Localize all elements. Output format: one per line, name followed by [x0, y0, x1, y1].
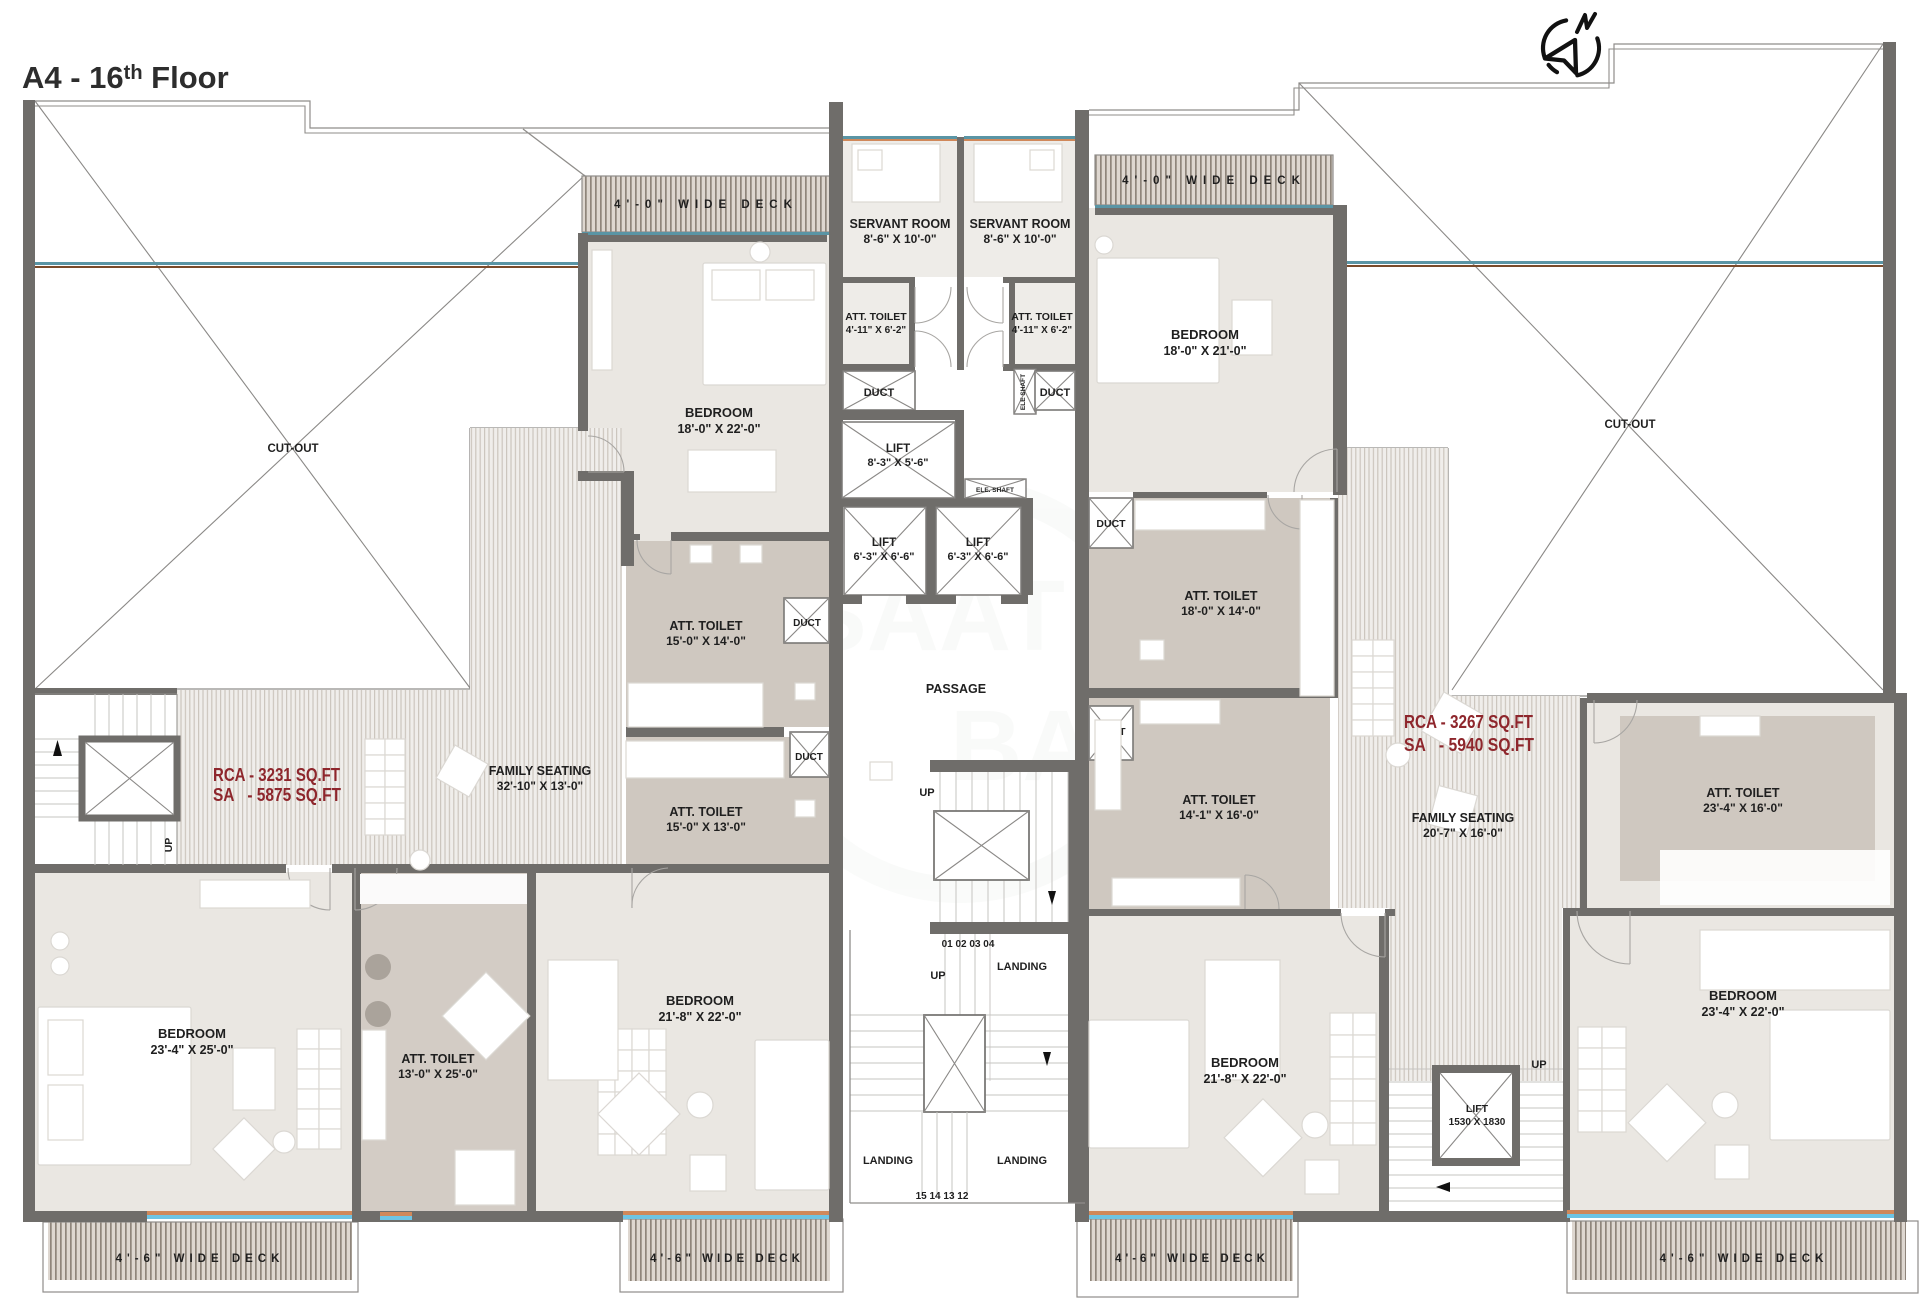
svg-text:LIFT: LIFT: [886, 443, 910, 455]
svg-text:FAMILY SEATING: FAMILY SEATING: [489, 764, 592, 778]
svg-text:FAMILY SEATING: FAMILY SEATING: [1412, 811, 1515, 825]
svg-text:18'-0" X 14'-0": 18'-0" X 14'-0": [1181, 604, 1261, 618]
svg-text:BEDROOM: BEDROOM: [158, 1026, 226, 1041]
svg-text:LANDING: LANDING: [997, 961, 1047, 973]
svg-text:ATT. TOILET: ATT. TOILET: [669, 805, 743, 819]
svg-text:ATT. TOILET: ATT. TOILET: [845, 311, 907, 323]
svg-text:18'-0" X 22'-0": 18'-0" X 22'-0": [677, 422, 760, 436]
svg-text:LANDING: LANDING: [997, 1155, 1047, 1167]
svg-text:ATT. TOILET: ATT. TOILET: [1182, 793, 1256, 807]
svg-text:21'-8" X 22'-0": 21'-8" X 22'-0": [658, 1010, 741, 1024]
svg-text:SERVANT ROOM: SERVANT ROOM: [850, 217, 951, 231]
svg-text:UP: UP: [919, 787, 934, 799]
svg-text:8'-6" X 10'-0": 8'-6" X 10'-0": [863, 232, 936, 246]
svg-text:23'-4" X 22'-0": 23'-4" X 22'-0": [1701, 1005, 1784, 1019]
svg-text:15 14 13 12: 15 14 13 12: [916, 1191, 969, 1202]
svg-text:CUT-OUT: CUT-OUT: [1604, 419, 1655, 431]
svg-text:ATT. TOILET: ATT. TOILET: [1706, 786, 1780, 800]
svg-text:4'-6" WIDE DECK: 4'-6" WIDE DECK: [650, 1253, 804, 1265]
svg-text:8'-6" X 10'-0": 8'-6" X 10'-0": [983, 232, 1056, 246]
svg-text:ATT. TOILET: ATT. TOILET: [1011, 311, 1073, 323]
svg-text:6'-3" X 6'-6": 6'-3" X 6'-6": [854, 551, 915, 563]
svg-text:15'-0" X 14'-0": 15'-0" X 14'-0": [666, 634, 746, 648]
svg-text:4'-6" WIDE DECK: 4'-6" WIDE DECK: [116, 1253, 285, 1265]
svg-text:DUCT: DUCT: [1040, 387, 1071, 399]
svg-text:LIFT: LIFT: [1466, 1103, 1489, 1115]
svg-text:14'-1" X 16'-0": 14'-1" X 16'-0": [1179, 808, 1259, 822]
svg-text:SERVANT ROOM: SERVANT ROOM: [970, 217, 1071, 231]
svg-text:LIFT: LIFT: [966, 537, 990, 549]
svg-text:UP: UP: [930, 970, 945, 982]
svg-text:PASSAGE: PASSAGE: [926, 682, 986, 696]
svg-text:BEDROOM: BEDROOM: [666, 993, 734, 1008]
svg-text:8'-3" X 5'-6": 8'-3" X 5'-6": [868, 457, 929, 469]
svg-text:LIFT: LIFT: [872, 537, 896, 549]
svg-text:4'-6" WIDE DECK: 4'-6" WIDE DECK: [1115, 1253, 1269, 1265]
svg-text:ATT. TOILET: ATT. TOILET: [669, 619, 743, 633]
svg-text:4'-0" WIDE DECK: 4'-0" WIDE DECK: [614, 199, 798, 211]
svg-text:ELE SHAFT: ELE SHAFT: [1020, 374, 1027, 410]
svg-text:21'-8" X 22'-0": 21'-8" X 22'-0": [1203, 1072, 1286, 1086]
svg-text:13'-0" X 25'-0": 13'-0" X 25'-0": [398, 1067, 478, 1081]
svg-text:32'-10" X 13'-0": 32'-10" X 13'-0": [497, 779, 583, 793]
svg-text:RCA - 3267 SQ.FT: RCA - 3267 SQ.FT: [1404, 712, 1533, 732]
svg-text:4'-0" WIDE DECK: 4'-0" WIDE DECK: [1122, 175, 1306, 187]
svg-text:18'-0" X 21'-0": 18'-0" X 21'-0": [1163, 344, 1246, 358]
svg-text:CUT-OUT: CUT-OUT: [267, 443, 318, 455]
svg-text:SA - 5940 SQ.FT: SA - 5940 SQ.FT: [1404, 735, 1534, 755]
svg-text:RCA - 3231 SQ.FT: RCA - 3231 SQ.FT: [213, 765, 340, 785]
svg-text:DUCT: DUCT: [1096, 518, 1126, 530]
svg-text:1530 X 1830: 1530 X 1830: [1449, 1117, 1506, 1128]
svg-text:ATT. TOILET: ATT. TOILET: [401, 1052, 475, 1066]
svg-text:4'-11" X 6'-2": 4'-11" X 6'-2": [846, 325, 907, 336]
svg-text:23'-4" X 16'-0": 23'-4" X 16'-0": [1703, 801, 1783, 815]
svg-text:DUCT: DUCT: [793, 618, 821, 629]
svg-text:UP: UP: [1531, 1059, 1546, 1071]
svg-text:ELE. SHAFT: ELE. SHAFT: [976, 487, 1014, 494]
svg-text:BEDROOM: BEDROOM: [685, 405, 753, 420]
svg-text:DUCT: DUCT: [864, 387, 895, 399]
svg-text:15'-0" X 13'-0": 15'-0" X 13'-0": [666, 820, 746, 834]
svg-text:BEDROOM: BEDROOM: [1171, 327, 1239, 342]
svg-text:SA - 5875 SQ.FT: SA - 5875 SQ.FT: [213, 785, 341, 805]
svg-text:LANDING: LANDING: [863, 1155, 913, 1167]
svg-text:DUCT: DUCT: [795, 752, 823, 763]
svg-text:23'-4" X 25'-0": 23'-4" X 25'-0": [150, 1043, 233, 1057]
svg-text:BEDROOM: BEDROOM: [1211, 1055, 1279, 1070]
svg-text:BEDROOM: BEDROOM: [1709, 988, 1777, 1003]
svg-text:UP: UP: [163, 838, 175, 853]
svg-text:4'-6" WIDE DECK: 4'-6" WIDE DECK: [1660, 1253, 1829, 1265]
svg-text:ATT. TOILET: ATT. TOILET: [1184, 589, 1258, 603]
svg-text:20'-7" X 16'-0": 20'-7" X 16'-0": [1423, 826, 1503, 840]
svg-text:6'-3" X 6'-6": 6'-3" X 6'-6": [948, 551, 1009, 563]
svg-text:4'-11" X 6'-2": 4'-11" X 6'-2": [1012, 325, 1073, 336]
svg-text:01 02 03 04: 01 02 03 04: [942, 939, 995, 950]
